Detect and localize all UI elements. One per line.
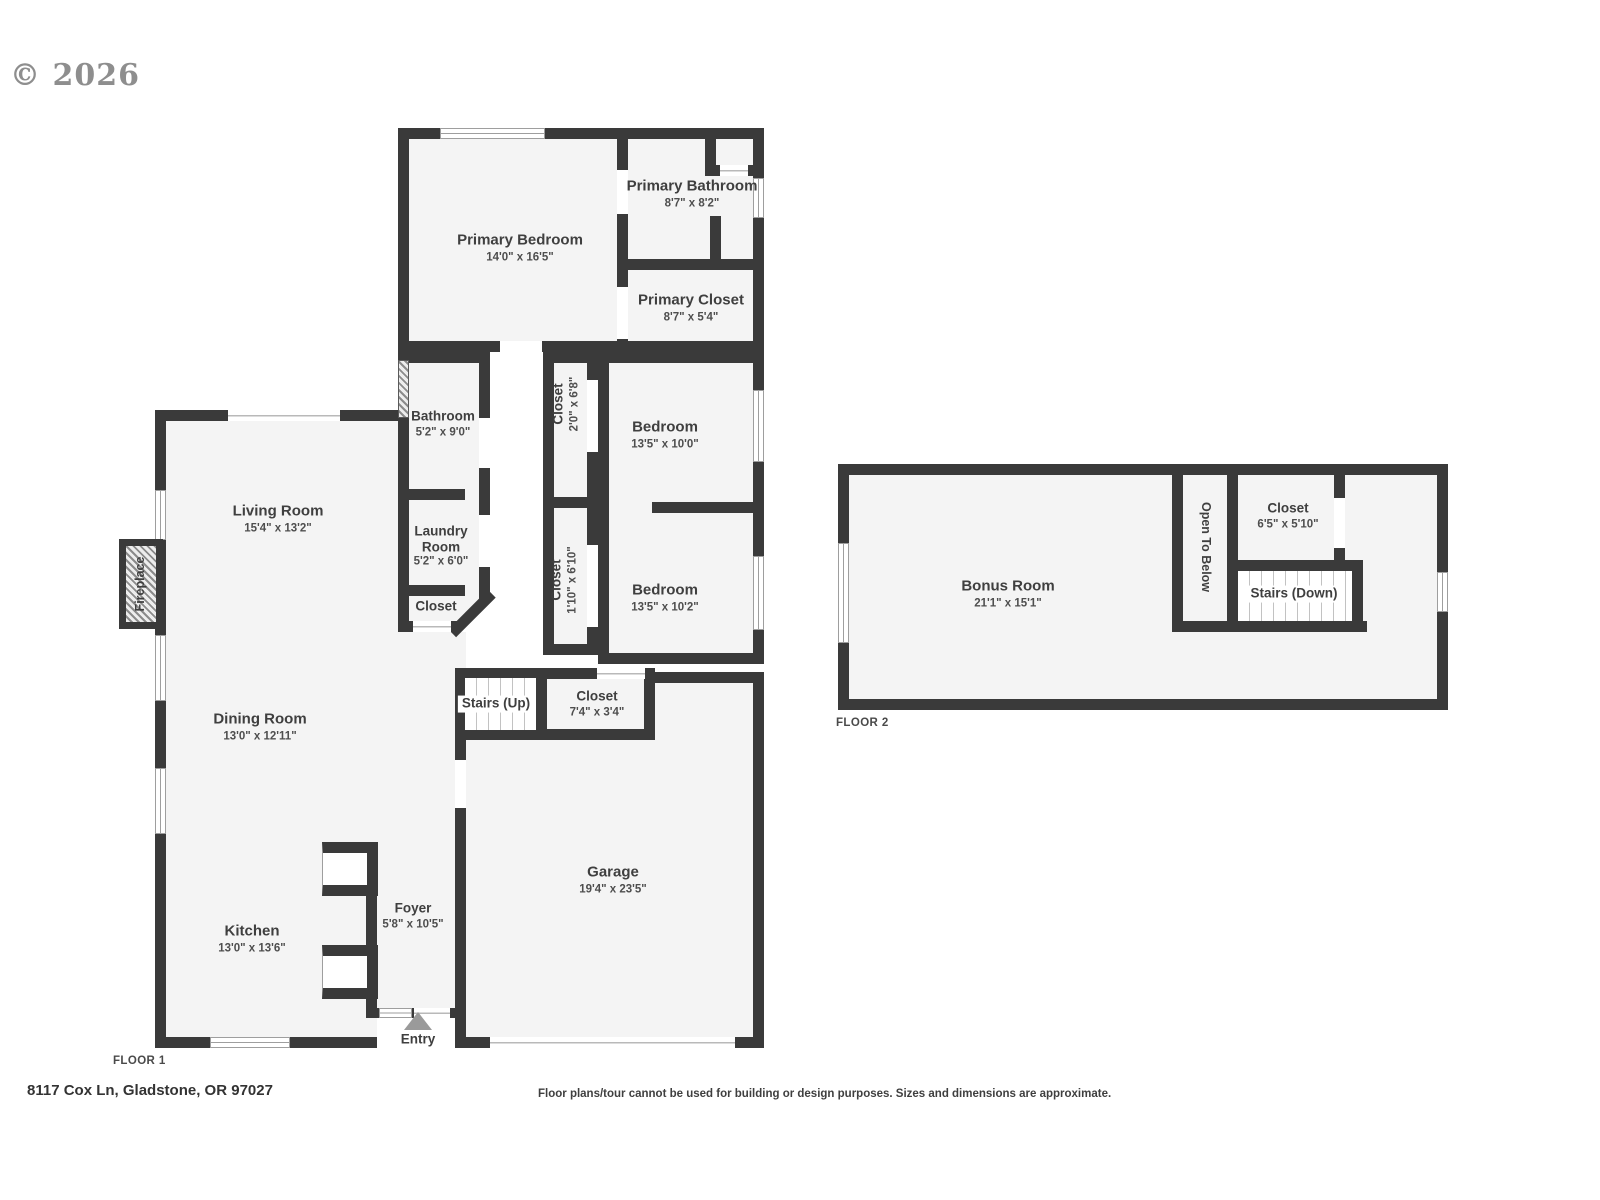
stairs-right-wall: [1352, 560, 1363, 632]
stairs-up-label: Stairs (Up): [458, 696, 534, 713]
door-opening: [455, 760, 466, 808]
bathroom-label: Bathroom 5'2" x 9'0": [411, 408, 475, 439]
entry-arrow-icon: [404, 1012, 432, 1030]
stairs-closet-wall: [536, 668, 547, 740]
open-to-below-label: Open To Below: [1197, 502, 1213, 592]
window: [838, 543, 849, 643]
wall-opening: [597, 668, 645, 679]
hall-closet-label: Closet 7'4" x 3'4": [570, 688, 625, 719]
shower-wall: [705, 139, 716, 176]
dining-room-label: Dining Room 13'0" x 12'11": [213, 710, 306, 743]
door-opening: [587, 380, 598, 452]
window: [753, 390, 764, 462]
window: [155, 635, 166, 701]
open-to-below-wall: [1227, 475, 1238, 632]
bedroom-divider-wall: [652, 502, 753, 513]
primary-bathroom-label: Primary Bathroom 8'7" x 8'2": [627, 177, 758, 210]
disclaimer-text: Floor plans/tour cannot be used for buil…: [538, 1088, 1111, 1100]
copyright-watermark: © 2026: [10, 58, 140, 93]
pocket-door: [398, 360, 409, 418]
wall-opening: [228, 410, 340, 421]
laundry-closet-label: Closet: [415, 599, 456, 616]
room-name: Entry: [401, 1032, 436, 1049]
bath-laundry-wall: [409, 489, 465, 500]
bedroom-2-label: Bedroom 13'5" x 10'2": [631, 581, 699, 614]
bedroom-1-label: Bedroom 13'5" x 10'0": [631, 418, 699, 451]
laundry-closet-wall: [409, 585, 465, 596]
door-opening: [479, 418, 490, 468]
open-to-below-wall: [1172, 475, 1183, 632]
door-opening: [1334, 498, 1345, 548]
fireplace-label: Fireplace: [133, 557, 149, 612]
strip-bottom-wall: [1172, 621, 1367, 632]
window: [1437, 572, 1448, 612]
door-opening: [720, 165, 748, 176]
foyer-alcove: [322, 842, 378, 896]
closet-divider-wall: [543, 497, 598, 508]
garage-label: Garage 19'4" x 23'5": [579, 863, 647, 896]
door-opening: [617, 287, 628, 339]
living-room-label: Living Room 15'4" x 13'2": [233, 502, 324, 535]
kitchen-label: Kitchen 13'0" x 13'6": [218, 922, 286, 955]
primary-bedroom-label: Primary Bedroom 14'0" x 16'5": [457, 231, 583, 264]
foyer-alcove: [322, 945, 378, 999]
bathroom-partition-wall: [710, 216, 721, 259]
laundry-room-label: Laundry Room 5'2" x 6'0": [406, 523, 476, 568]
door-opening: [587, 545, 598, 627]
garage-door-opening: [490, 1037, 735, 1048]
primary-closet-label: Primary Closet 8'7" x 5'4": [638, 291, 744, 324]
window: [155, 490, 166, 540]
door-opening: [500, 341, 542, 352]
floor-plan-canvas: © 2026 Fireplace Entry Living Room 15'4"…: [0, 0, 1600, 1200]
bonus-room-label: Bonus Room 21'1" x 15'1": [961, 577, 1054, 610]
room-name: Fireplace: [133, 557, 149, 612]
window: [210, 1037, 290, 1048]
floor1-tag: FLOOR 1: [113, 1055, 166, 1067]
closet-b-label: Closet 1'10" x 6'10": [548, 546, 579, 614]
floor2-tag: FLOOR 2: [836, 717, 889, 729]
door-opening: [479, 515, 490, 567]
foyer-label: Foyer 5'8" x 10'5": [382, 900, 443, 931]
stairs-down-label: Stairs (Down): [1246, 586, 1341, 603]
floor2-closet-label: Closet 6'5" x 5'10": [1257, 500, 1318, 531]
window: [753, 556, 764, 630]
closet-a-label: Closet 2'0" x 6'8": [550, 377, 581, 432]
closet-bottom-wall: [1238, 560, 1356, 571]
property-address: 8117 Cox Ln, Gladstone, OR 97027: [27, 1082, 273, 1099]
entry-label: Entry: [401, 1032, 436, 1049]
bath-closet-wall: [628, 259, 753, 270]
window: [155, 768, 166, 834]
window: [440, 128, 545, 139]
door-opening: [413, 621, 451, 632]
